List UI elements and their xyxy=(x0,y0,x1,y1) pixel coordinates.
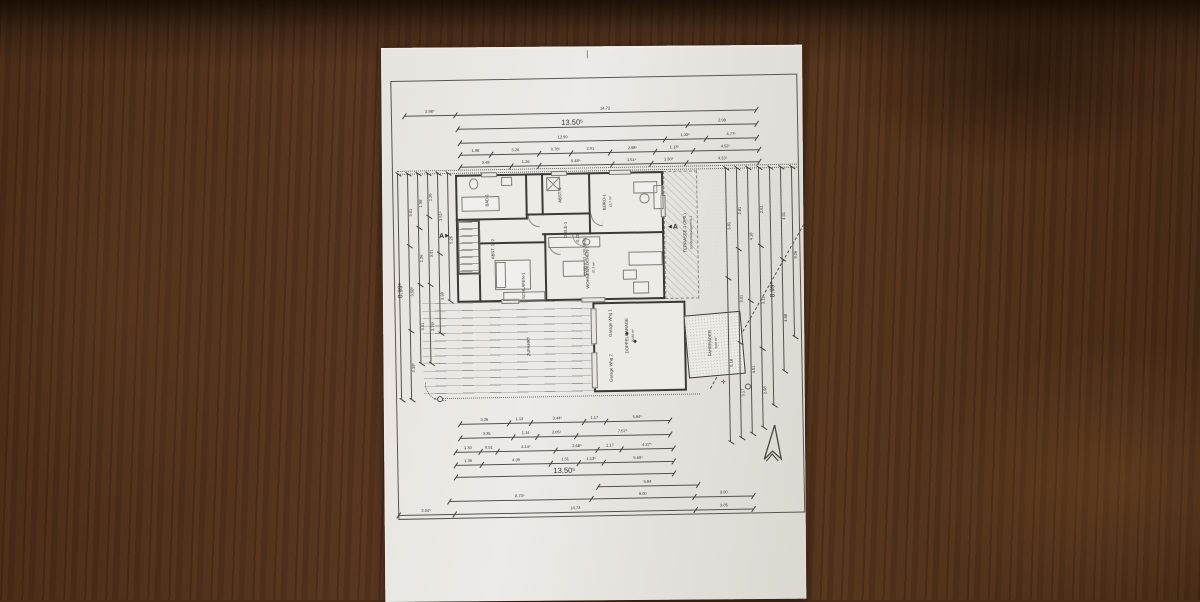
dimension-label: 13.50⁵ xyxy=(553,466,575,474)
room-label: +0,00 = 37,425 NHN xyxy=(582,234,589,280)
dimension-label: 8.99⁵ xyxy=(770,282,777,297)
dimension-segment: 1.32⁵ xyxy=(665,129,706,139)
dimension-segment: 3.48 xyxy=(460,157,512,167)
section-arrow-icon: ▶ xyxy=(445,234,449,239)
room-label: BÜRO-112,7 m² xyxy=(602,193,614,212)
dimension-label: 3.51 xyxy=(421,323,425,331)
dimension-label: 5.60⁵ xyxy=(634,456,644,460)
dimension-label: 1.13 xyxy=(516,418,524,422)
dimension-segment: 1.13 xyxy=(508,414,530,423)
dimension-label: 1.17 xyxy=(591,416,599,420)
dimension-label: 1.17 xyxy=(606,444,614,448)
dimension-segment: 0.51 xyxy=(480,442,498,451)
dimension-segment: 4.01 xyxy=(781,167,792,259)
dimension-segment: 2.81 xyxy=(737,168,747,250)
dimension-label: 1.30 xyxy=(464,447,472,451)
dimension-label: 4.77⁵ xyxy=(726,133,736,137)
room-label-text: +0,00 = 37,425 NHN xyxy=(583,238,589,277)
dimension-label: 3.00 xyxy=(720,491,728,495)
dimension-label: 2.26 xyxy=(420,255,424,263)
dimension-segment: 0.76⁵ xyxy=(539,144,571,154)
dimension-segment: 5.26 xyxy=(448,173,459,301)
dimension-chain: 5.84 xyxy=(598,475,698,487)
dimension-segment: 1.51 xyxy=(551,454,579,464)
dimension-segment: 2.01 xyxy=(571,143,610,153)
dimension-segment: 2.05⁵ xyxy=(538,427,577,437)
dimension-label: 4.99 xyxy=(512,459,520,463)
dimension-segment: 3.00 xyxy=(694,486,753,496)
dimension-segment: 1.13⁵ xyxy=(578,453,603,462)
dimension-label: 5.84 xyxy=(644,480,652,484)
dimension-label: 13.50⁵ xyxy=(561,118,583,126)
dimension-label: 1.98 xyxy=(419,199,423,207)
dimension-label: 2.81 xyxy=(738,207,742,215)
dimension-segment: 2.68⁵ xyxy=(555,440,598,450)
dimension-label: 4.23⁵ xyxy=(718,157,728,161)
room-label: FAHRRÄDER8,00 m² xyxy=(707,328,719,359)
dimension-label: 3.17 xyxy=(741,389,745,397)
dimension-label: 3.48 xyxy=(482,161,490,165)
dimension-label: 3.11 xyxy=(762,296,766,304)
room-label-text: FAHRRÄDER xyxy=(708,330,714,356)
section-arrow-icon: ◀ xyxy=(668,225,672,230)
dimension-label: 9.00 xyxy=(639,492,647,496)
dimension-segment: 1.30 xyxy=(455,442,480,451)
dimension-label: 14.72 xyxy=(600,107,610,111)
section-letter: A xyxy=(439,233,444,240)
dimension-segment: 2.51 xyxy=(759,167,769,246)
dimension-segment: 3.35 xyxy=(460,428,513,438)
dimension-label: 1.26 xyxy=(522,160,530,164)
dimension-segment: 1.17 xyxy=(583,412,605,421)
dimension-label: 4.14⁵ xyxy=(522,446,532,450)
dimension-segment: 4.23⁵ xyxy=(686,152,758,162)
room-label-text: ZUFAHRT xyxy=(526,337,531,357)
dimension-label: 4.52⁵ xyxy=(721,145,731,149)
dimension-segment: 1.17 xyxy=(598,440,622,449)
dimension-label: 2.05⁵ xyxy=(552,431,562,435)
dimension-segment: 3.04⁵ xyxy=(398,505,455,515)
dimension-label: 4.51 xyxy=(752,365,756,373)
room-area-text: 8,00 m² xyxy=(714,338,718,349)
room-label: TERRASSE-1 (2Pfl.)Sondernutzungsrecht 1 xyxy=(682,209,694,256)
dimension-label: 3.05 xyxy=(720,504,728,508)
room-area-text: 32,86 m² xyxy=(631,329,635,342)
dimension-label: 1.51 xyxy=(561,458,569,462)
dimension-segment: 8.73⁵ xyxy=(449,489,592,501)
dimension-label: 5.84⁵ xyxy=(633,415,643,419)
dimension-label: 1.13⁵ xyxy=(669,146,679,150)
dimension-label: 5.18 xyxy=(730,359,734,367)
room-label: ABST. 1+2 xyxy=(490,237,496,261)
room-label-text: ABST.-1 xyxy=(558,187,563,203)
dimension-label: 3.51⁵ xyxy=(439,211,443,221)
dimension-label: 1.39 xyxy=(464,460,472,464)
generated-annotations-layer: 2.98⁵14.7213.50⁵2.9812.991.32⁵4.77⁵1.983… xyxy=(381,45,806,602)
dimension-label: 2.51 xyxy=(760,205,764,213)
dimension-segment: 1.30⁵ xyxy=(651,154,686,164)
dimension-segment: 2.98⁵ xyxy=(610,142,655,152)
room-label: ABST.-1 xyxy=(557,186,563,204)
room-label: SCHLAFEN-1 xyxy=(521,270,528,301)
room-label: DOPPELGARAGE32,86 m² xyxy=(624,315,636,357)
room-label-text: SCHLAFEN-1 xyxy=(521,272,527,299)
dimension-label: 12.99 xyxy=(557,136,567,140)
dimension-segment: 1.26 xyxy=(511,156,539,166)
dimension-label: 8.99⁵ xyxy=(398,282,405,297)
dimension-segment: 4.52⁵ xyxy=(693,140,758,150)
dimension-label: 14.73 xyxy=(570,507,580,511)
dimension-label: 3.76⁵ xyxy=(431,322,435,332)
dimension-segment: 7.57⁵ xyxy=(576,425,670,436)
dimension-segment: 3.01 xyxy=(738,249,749,343)
dimension-label: 1.98 xyxy=(472,149,480,153)
dimension-segment: 3.05 xyxy=(695,499,753,509)
dimension-segment: 1.14 xyxy=(513,427,538,436)
dimension-label: 2.01 xyxy=(586,147,594,151)
dimension-segment: 4.99 xyxy=(481,454,550,464)
dimension-label: 2.68⁵ xyxy=(572,445,582,449)
room-label-text: BAD-1 xyxy=(485,194,490,207)
dimension-label: 2.39⁵ xyxy=(412,363,416,373)
dimension-label: 2.98⁵ xyxy=(627,147,637,151)
dimension-label: 9.26 xyxy=(794,250,798,258)
room-label: Garage Whg 1 xyxy=(607,307,614,340)
dimension-label: 5.48⁵ xyxy=(571,160,581,164)
room-area-text: Sondernutzungsrecht 1 xyxy=(689,216,693,250)
dimension-label: 3.44⁵ xyxy=(552,417,562,421)
dimension-segment: 1.98 xyxy=(459,145,491,155)
dimension-segment: 9.26 xyxy=(792,167,804,337)
dimension-segment: 4.27⁵ xyxy=(621,439,673,449)
dimension-segment: 14.73 xyxy=(455,501,695,514)
dimension-segment: 5.60⁵ xyxy=(604,452,674,462)
floor-plan-drawing: ◆ ◆ ✛ 2.98⁵14.7213.50⁵2.9812.991.32⁵4.77… xyxy=(381,45,806,602)
dimension-label: 4.18 xyxy=(750,233,754,241)
dimension-segment: 4.14⁵ xyxy=(497,441,555,451)
dimension-label: 1.30⁵ xyxy=(664,158,674,162)
dimension-segment: 2.98 xyxy=(762,349,772,428)
section-letter: A xyxy=(673,224,678,231)
dimension-label: 3.01 xyxy=(740,295,744,303)
dimension-label: 7.57⁵ xyxy=(618,430,628,434)
dimension-label: 4.27⁵ xyxy=(642,443,652,447)
dimension-label: 3.81 xyxy=(727,222,731,230)
dimension-label: 1.51⁵ xyxy=(627,159,637,163)
dimension-segment: 3.26 xyxy=(491,144,539,154)
dimension-label: 0.76⁵ xyxy=(550,148,560,152)
room-label-text: DIELE-1 xyxy=(563,222,568,238)
dimension-label: 8.73⁵ xyxy=(516,495,526,499)
dimension-segment: 1.39 xyxy=(455,455,481,464)
dimension-label: 2.98 xyxy=(718,119,726,123)
room-area-text: 12,7 m² xyxy=(608,196,612,207)
room-label-text: BÜRO-1 xyxy=(602,194,607,210)
dimension-label: 3.01 xyxy=(430,249,434,257)
dimension-chain: 13.50⁵2.98 xyxy=(457,114,756,129)
dimension-chain: 1.300.514.14⁵2.68⁵1.174.27⁵ xyxy=(455,439,673,453)
room-label-text: -0,20 xyxy=(576,234,581,244)
room-label: -0,20 xyxy=(575,233,581,245)
dimension-segment: 3.44⁵ xyxy=(531,413,584,423)
dimension-label: 3.26 xyxy=(511,149,519,153)
dimension-label: 3.35 xyxy=(482,432,490,436)
dimension-segment: 2.98⁵ xyxy=(404,106,455,116)
room-label-text: TERRASSE-1 (2Pfl.) xyxy=(682,213,688,252)
section-marker: ◀A xyxy=(668,224,679,231)
dimension-segment: 2.98 xyxy=(687,114,756,124)
dimension-chain: 3.261.133.44⁵1.175.84⁵ xyxy=(459,411,669,425)
room-label: ZUFAHRT xyxy=(526,335,532,358)
dimension-segment: 1.13⁵ xyxy=(655,141,694,151)
room-label-text: Garage Whg 2 xyxy=(609,354,615,382)
dimension-label: 3.26 xyxy=(480,418,488,422)
section-marker: A▶ xyxy=(438,233,449,240)
dimension-label: 0.51 xyxy=(485,446,493,450)
dimension-segment: 14.72 xyxy=(455,100,756,115)
dimension-segment: 5.84 xyxy=(598,475,698,486)
dimension-segment: 1.51⁵ xyxy=(612,154,652,164)
room-label: Garage Whg 2 xyxy=(608,352,615,385)
room-label-text: ABST. 1+2 xyxy=(491,239,496,259)
dimension-label: 3.58⁵ xyxy=(411,287,415,297)
dimension-segment: 3.17 xyxy=(740,343,751,437)
dimension-label: 4.98 xyxy=(784,314,788,322)
paper-sheet: ◆ ◆ ✛ 2.98⁵14.7213.50⁵2.9812.991.32⁵4.77… xyxy=(381,45,806,602)
dimension-label: 1.13⁵ xyxy=(586,457,596,461)
dimension-label: 5.26 xyxy=(450,235,454,243)
dimension-label: 2.98 xyxy=(763,387,767,395)
dimension-chain: 9.26 xyxy=(791,167,804,337)
dimension-segment: 12.99 xyxy=(459,130,665,143)
room-label: BAD-1 xyxy=(484,193,490,208)
dimension-label: 4.01 xyxy=(782,212,786,220)
dimension-chain: 3.351.142.05⁵7.57⁵ xyxy=(460,425,670,439)
dimension-segment: 4.77⁵ xyxy=(705,128,756,138)
dimension-label: 1.14 xyxy=(521,432,529,436)
room-label-text: DOPPELGARAGE xyxy=(624,318,630,354)
dimension-label: 3.01 xyxy=(409,208,413,216)
dimension-segment: 13.50⁵ xyxy=(455,464,673,477)
dimension-segment: 5.84⁵ xyxy=(606,411,670,421)
dimension-segment: 13.50⁵ xyxy=(457,116,688,129)
dimension-segment: 9.00 xyxy=(592,488,695,499)
dimension-label: 2.98⁵ xyxy=(425,110,435,114)
room-label: DIELE-1 xyxy=(563,220,569,239)
room-label-text: Garage Whg 1 xyxy=(608,309,614,337)
dimension-label: 3.04⁵ xyxy=(422,509,432,513)
room-area-text: 37,4 m² xyxy=(592,262,596,273)
dimension-segment: 5.48⁵ xyxy=(540,155,612,165)
dimension-label: 1.32⁵ xyxy=(680,134,690,138)
dimension-label: 1.26 xyxy=(429,194,433,202)
dimension-segment: 3.26 xyxy=(459,414,508,424)
dimension-label: 3.38 xyxy=(441,292,445,300)
